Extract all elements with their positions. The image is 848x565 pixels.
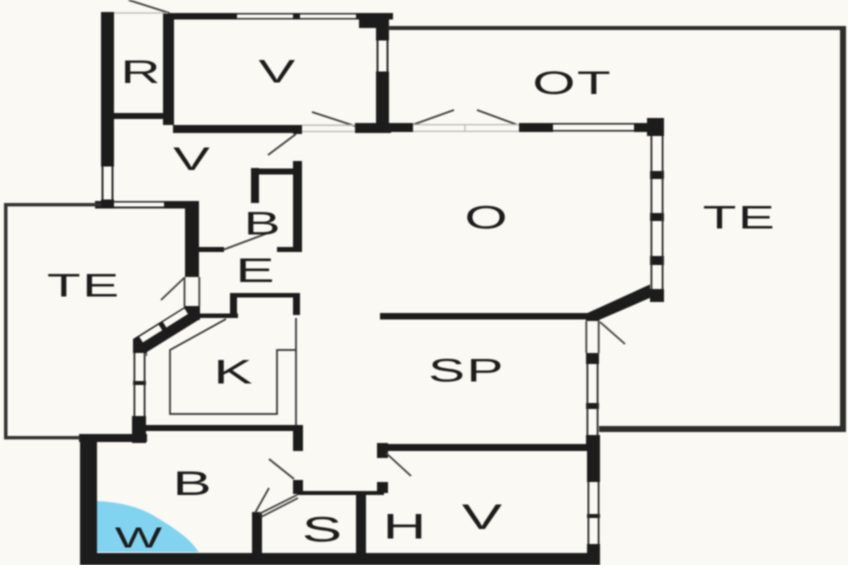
- svg-text:W: W: [115, 521, 164, 554]
- svg-text:B: B: [173, 465, 214, 503]
- svg-text:V: V: [173, 141, 211, 177]
- svg-text:OT: OT: [532, 65, 612, 101]
- svg-text:V: V: [259, 53, 297, 89]
- svg-text:R: R: [121, 54, 162, 90]
- svg-text:TE: TE: [703, 199, 777, 235]
- svg-text:V: V: [462, 498, 504, 537]
- svg-text:SP: SP: [428, 352, 505, 388]
- svg-text:O: O: [465, 199, 510, 235]
- svg-text:K: K: [214, 354, 255, 392]
- svg-text:TE: TE: [47, 267, 121, 303]
- svg-text:S: S: [302, 510, 344, 549]
- svg-text:H: H: [383, 507, 428, 546]
- svg-text:B: B: [244, 205, 282, 241]
- svg-text:E: E: [236, 252, 277, 290]
